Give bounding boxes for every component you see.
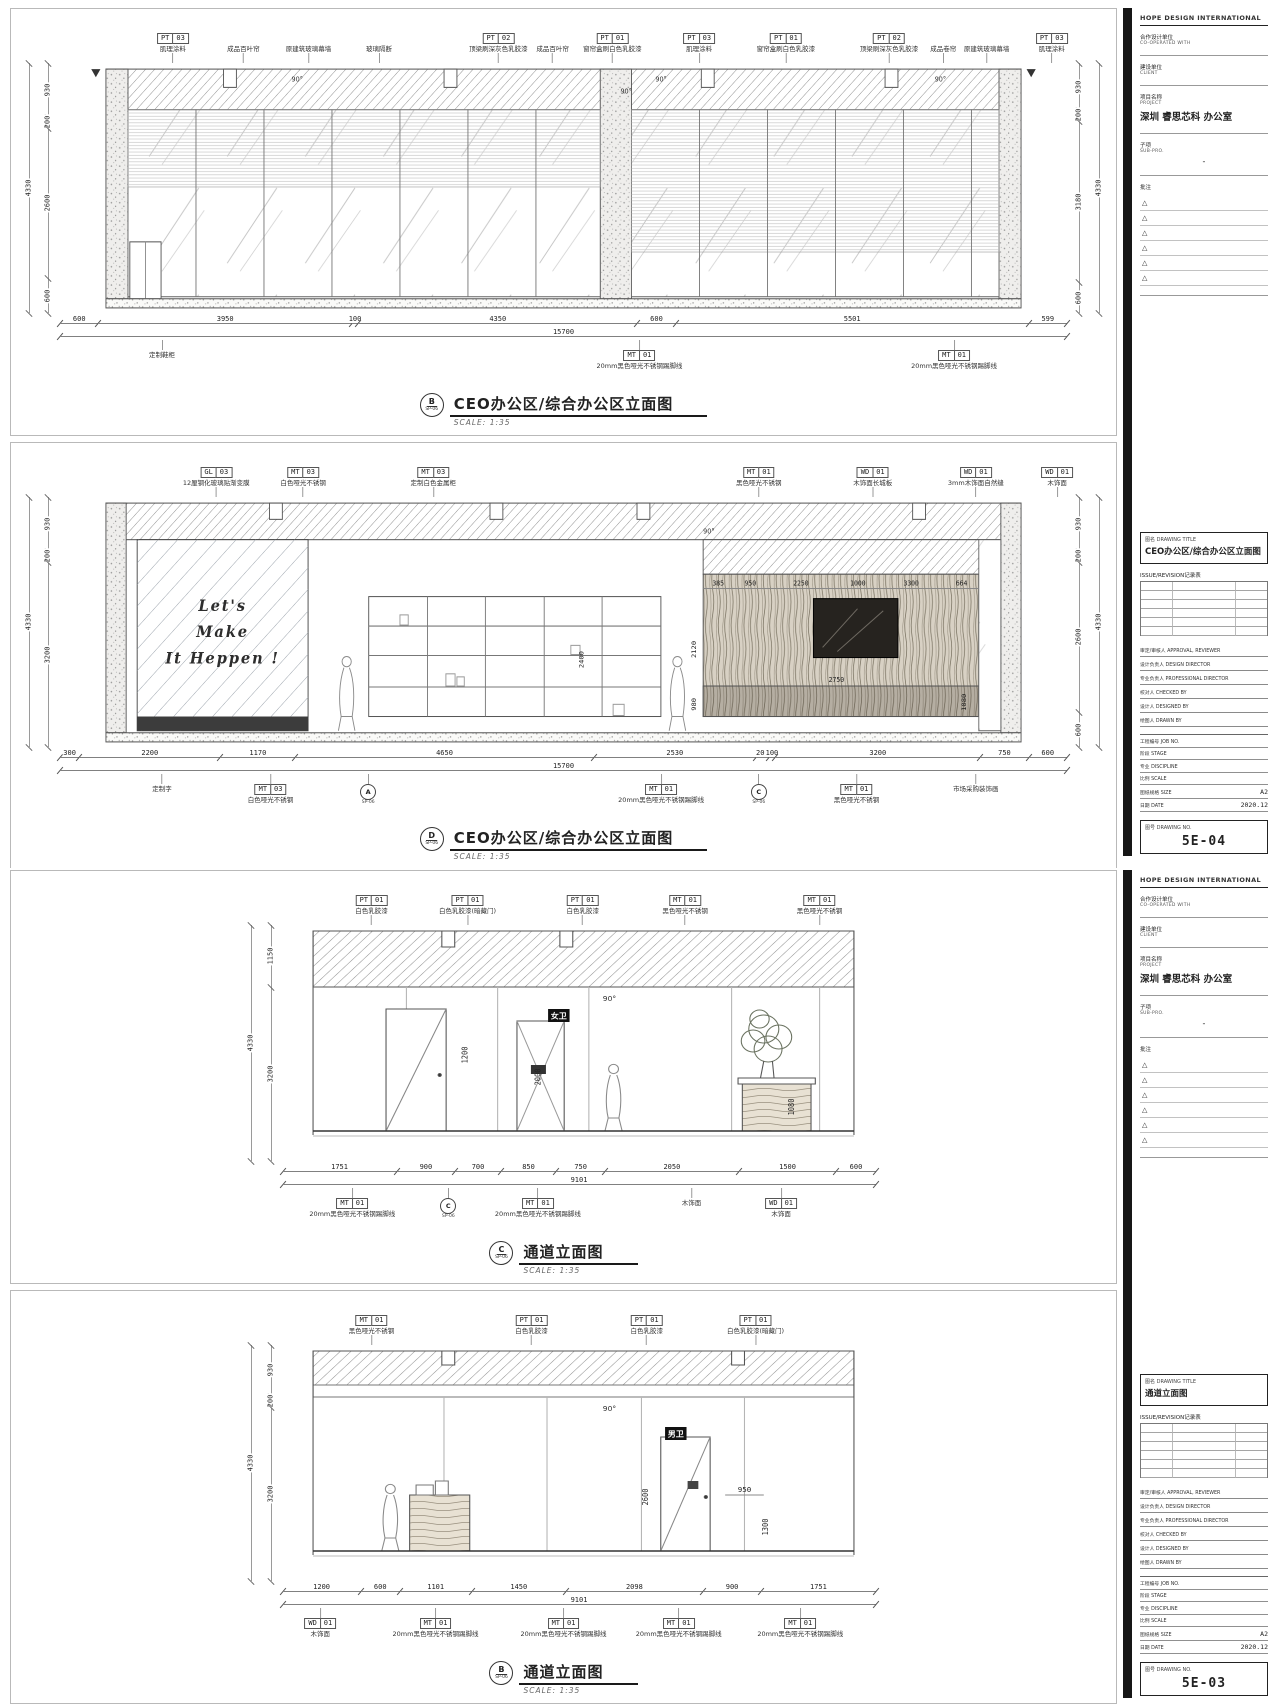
bottom-callout-row: 定制字 MT03 白色哑光不锈钢 A SP-06 bbox=[21, 774, 1106, 822]
material-desc: 20mm黑色哑光不锈钢踢脚线 bbox=[757, 1630, 843, 1638]
material-callout: MT01 20mm黑色哑光不锈钢踢脚线 bbox=[495, 1188, 581, 1218]
dimension-segment: 600 bbox=[1029, 748, 1067, 761]
overall-height-dim: 4330 bbox=[244, 1345, 259, 1581]
dimension-segment: 750 bbox=[556, 1162, 605, 1175]
drawing-scale: SCALE: 1:35 bbox=[519, 1686, 637, 1695]
sheet-5e03: PT01 白色乳胶漆 PT01 白色乳胶漆(暗藏门) PT01 白色乳胶漆 bbox=[8, 868, 1274, 1700]
material-tag: MT01 bbox=[784, 1618, 816, 1629]
leader-line bbox=[216, 487, 217, 497]
dimension-segment: 600 bbox=[1067, 712, 1091, 747]
dimension-segment: 600 bbox=[36, 278, 60, 313]
material-desc: 白色乳胶漆 bbox=[630, 1327, 663, 1335]
elevation-body: 4330 9302003200 bbox=[244, 1345, 884, 1581]
elevation-ceo-office-2: GL03 12厘钢化玻璃贴渐变膜 MT03 白色哑光不锈钢 MT03 定制白色金… bbox=[10, 442, 1117, 870]
material-tag: MT01 bbox=[336, 1198, 368, 1209]
floor-line bbox=[313, 1551, 854, 1556]
dimension-segment: 3200 bbox=[36, 562, 60, 747]
open-shelving bbox=[369, 597, 661, 717]
svg-text:2250: 2250 bbox=[793, 579, 808, 587]
leader-line bbox=[1051, 53, 1052, 63]
leader-line bbox=[758, 487, 759, 497]
material-desc: 顶梁刷深灰色乳胶漆 bbox=[469, 45, 528, 53]
material-callout: MT01 黑色哑光不锈钢 bbox=[349, 1315, 395, 1345]
material-desc: 白色乳胶漆 bbox=[515, 1327, 548, 1335]
material-callout: MT01 20mm黑色哑光不锈钢踢脚线 bbox=[911, 340, 997, 370]
leader-line bbox=[162, 340, 163, 350]
material-tag: PT03 bbox=[157, 33, 189, 44]
material-callout: 定制字 bbox=[152, 774, 172, 793]
bottom-dim-total: 9101 bbox=[283, 1595, 876, 1608]
dimension-segment: 1200 bbox=[283, 1582, 361, 1595]
material-callout: MT01 黑色哑光不锈钢 bbox=[797, 895, 843, 925]
material-callout: MT03 白色哑光不锈钢 bbox=[248, 774, 294, 804]
signature-row: 专业负责人 PROFESSIONAL DIRECTOR bbox=[1140, 1513, 1268, 1527]
dimension-segment: 2600 bbox=[1067, 562, 1091, 712]
dimension-segment: 1101 bbox=[400, 1582, 472, 1595]
meta-row: 专业 DISCIPLINE bbox=[1140, 1602, 1268, 1615]
drawing-title: CSP-06 通道立面图SCALE: 1:35 bbox=[21, 1241, 1106, 1275]
person-figure bbox=[381, 1484, 398, 1551]
drawing-number: 5E-03 bbox=[1145, 1676, 1263, 1691]
subproject-section: 子项SUB-PRO.- bbox=[1140, 138, 1268, 176]
material-tag: MT01 bbox=[522, 1198, 554, 1209]
material-callout: 木饰面 bbox=[682, 1188, 702, 1207]
material-callout: MT03 定制白色金属柜 bbox=[411, 467, 457, 497]
elevation-body: 4330 11503200 bbox=[244, 925, 884, 1161]
coop-section: 合作设计单位CO-OPERATED WITH bbox=[1140, 30, 1268, 56]
material-callout: 玻璃隔断 bbox=[366, 44, 392, 63]
revision-table: ISSUE/REVISION记录表 bbox=[1140, 571, 1268, 636]
material-desc: 20mm黑色哑光不锈钢踢脚线 bbox=[393, 1630, 479, 1638]
material-tag: GL03 bbox=[200, 467, 232, 478]
signature-row: 设计负责人 DESIGN DIRECTOR bbox=[1140, 657, 1268, 671]
dimension-segment: 200 bbox=[36, 551, 60, 563]
dimension-segment: 1751 bbox=[761, 1582, 875, 1595]
material-desc: 白色乳胶漆 bbox=[566, 907, 599, 915]
client-section: 建设单位CLIENT bbox=[1140, 60, 1268, 86]
slogan-glass-wall: Let's Make It Heppen ! bbox=[137, 540, 308, 731]
material-callout: WD01 木饰面 bbox=[765, 1188, 797, 1218]
material-desc: 玻璃隔断 bbox=[366, 45, 392, 53]
meta-row: 专业 DISCIPLINE bbox=[1140, 760, 1268, 773]
door-hidden bbox=[386, 1009, 446, 1131]
meta-table: 工程编号 JOB NO.阶段 STAGE专业 DISCIPLINE比例 SCAL… bbox=[1140, 734, 1268, 812]
meta-row: 阶段 STAGE bbox=[1140, 1590, 1268, 1603]
material-callout: C SP-06 bbox=[440, 1188, 456, 1219]
material-tag: WD01 bbox=[1041, 467, 1073, 478]
leader-line bbox=[162, 774, 163, 784]
material-callout: C SP-06 bbox=[751, 774, 767, 805]
meta-row: 比例 SCALE bbox=[1140, 1615, 1268, 1628]
overall-height-dim: 4330 bbox=[21, 497, 36, 747]
meta-row: 日期 DATE2020.12 bbox=[1140, 1641, 1268, 1655]
leader-line bbox=[661, 774, 662, 784]
dimension-segment: 2600 bbox=[36, 128, 60, 278]
bottom-dim-chain: 175190070085075020501500600 bbox=[283, 1162, 876, 1175]
revision-triangle-icon: △ bbox=[1140, 271, 1268, 286]
material-callout: 原建筑玻璃幕墙 bbox=[964, 44, 1010, 63]
svg-text:1200: 1200 bbox=[460, 1047, 469, 1064]
signature-row: 校对人 CHECKED BY bbox=[1140, 1527, 1268, 1541]
leader-line bbox=[303, 487, 304, 497]
revision-triangle-icon: △ bbox=[1140, 226, 1268, 241]
material-desc: 定制鞋柜 bbox=[149, 351, 175, 359]
svg-text:664: 664 bbox=[956, 579, 968, 587]
signature-row: 绘图人 DRAWN BY bbox=[1140, 713, 1268, 727]
material-tag: MT03 bbox=[287, 467, 319, 478]
bottom-dim-chain: 30022001170465025302001003200750600 bbox=[60, 748, 1067, 761]
elevation-ceo-office-1: PT03 肌理涂料 成品百叶帘 原建筑玻璃幕墙 玻璃隔断 bbox=[10, 8, 1117, 436]
leader-line bbox=[270, 774, 271, 784]
top-callout-row: GL03 12厘钢化玻璃贴渐变膜 MT03 白色哑光不锈钢 MT03 定制白色金… bbox=[21, 443, 1106, 497]
dimension-segment: 3950 bbox=[98, 314, 351, 327]
signature-rows: 审定/审核人 APPROVAL, REVIEWER设计负责人 DESIGN DI… bbox=[1140, 1485, 1268, 1569]
material-callout: MT01 20mm黑色哑光不锈钢踢脚线 bbox=[309, 1188, 395, 1218]
material-desc: 20mm黑色哑光不锈钢踢脚线 bbox=[495, 1210, 581, 1218]
svg-text:90°: 90° bbox=[935, 75, 946, 83]
material-desc: 黑色哑光不锈钢 bbox=[662, 907, 708, 915]
dimension-segment: 1751 bbox=[283, 1162, 397, 1175]
shoe-cabinet bbox=[130, 242, 161, 299]
revision-triangle-icon: △ bbox=[1140, 241, 1268, 256]
client-section: 建设单位CLIENT bbox=[1140, 922, 1268, 948]
drawing-sheet-page: PT03 肌理涂料 成品百叶帘 原建筑玻璃幕墙 玻璃隔断 bbox=[0, 0, 1280, 1700]
elevation-canvas: 90° 90° 90° 90° bbox=[60, 63, 1067, 313]
material-callout: PT01 白色乳胶漆 bbox=[566, 895, 599, 925]
terrazzo-floor bbox=[106, 733, 1021, 742]
material-callout: MT01 20mm黑色哑光不锈钢踢脚线 bbox=[393, 1608, 479, 1638]
leader-line bbox=[552, 53, 553, 63]
dimension-segment: 600 bbox=[637, 314, 675, 327]
material-desc: 20mm黑色哑光不锈钢踢脚线 bbox=[636, 1630, 722, 1638]
material-callout: MT01 20mm黑色哑光不锈钢踢脚线 bbox=[596, 340, 682, 370]
svg-text:2400: 2400 bbox=[578, 651, 586, 668]
top-callout-row: PT01 白色乳胶漆 PT01 白色乳胶漆(暗藏门) PT01 白色乳胶漆 bbox=[244, 871, 884, 925]
material-desc: 20mm黑色哑光不锈钢踢脚线 bbox=[596, 362, 682, 370]
dimension-segment: 5501 bbox=[676, 314, 1029, 327]
leader-line bbox=[172, 53, 173, 63]
firm-name: HOPE DESIGN INTERNATIONAL bbox=[1140, 14, 1268, 26]
drawing-title: BSP-06 CEO办公区/综合办公区立面图SCALE: 1:35 bbox=[21, 393, 1106, 427]
material-tag: MT01 bbox=[663, 1618, 695, 1629]
material-desc: 黑色哑光不锈钢 bbox=[349, 1327, 395, 1335]
dimension-segment: 700 bbox=[455, 1162, 501, 1175]
bottom-dim-total: 15700 bbox=[60, 761, 1067, 774]
svg-text:90°: 90° bbox=[602, 1404, 615, 1413]
material-desc: 白色乳胶漆 bbox=[355, 907, 388, 915]
person-figure bbox=[338, 657, 355, 731]
dimension-segment: 2098 bbox=[566, 1582, 703, 1595]
bottom-dim-total: 15700 bbox=[60, 327, 1067, 340]
drawing-number-box: 图号 DRAWING NO.5E-03 bbox=[1140, 1662, 1268, 1696]
svg-text:90°: 90° bbox=[602, 994, 615, 1003]
drawing-number-box: 图号 DRAWING NO.5E-04 bbox=[1140, 820, 1268, 854]
material-desc: 20mm黑色哑光不锈钢踢脚线 bbox=[309, 1210, 395, 1218]
title-block: HOPE DESIGN INTERNATIONAL 合作设计单位CO-OPERA… bbox=[1132, 6, 1274, 858]
material-callout: GL03 12厘钢化玻璃贴渐变膜 bbox=[183, 467, 250, 497]
elevation-marker-icon: BSP-06 bbox=[489, 1661, 513, 1685]
dimension-segment: 1450 bbox=[472, 1582, 566, 1595]
leader-line bbox=[243, 53, 244, 63]
elevation-corridor-1: PT01 白色乳胶漆 PT01 白色乳胶漆(暗藏门) PT01 白色乳胶漆 bbox=[10, 870, 1117, 1284]
material-callout: 成品百叶帘 bbox=[227, 44, 260, 63]
wood-planter-cabinet bbox=[738, 1078, 815, 1131]
title-block: HOPE DESIGN INTERNATIONAL 合作设计单位CO-OPERA… bbox=[1132, 868, 1274, 1700]
leader-line bbox=[308, 53, 309, 63]
elevation-canvas: 女卫 bbox=[283, 925, 884, 1161]
material-tag: PT03 bbox=[1036, 33, 1068, 44]
material-tag: PT03 bbox=[683, 33, 715, 44]
left-dim-rail: 11503200 bbox=[259, 925, 283, 1161]
material-desc: 木饰面 bbox=[771, 1210, 791, 1218]
meta-row: 工程编号 JOB NO. bbox=[1140, 735, 1268, 748]
material-tag: WD01 bbox=[304, 1618, 336, 1629]
svg-text:2120: 2120 bbox=[690, 641, 698, 658]
revision-table: ISSUE/REVISION记录表 bbox=[1140, 1413, 1268, 1478]
person-figure bbox=[669, 657, 686, 731]
svg-text:90°: 90° bbox=[620, 87, 631, 95]
leader-line bbox=[758, 774, 759, 784]
dimension-segment: 900 bbox=[703, 1582, 762, 1595]
meta-row: 工程编号 JOB NO. bbox=[1140, 1577, 1268, 1590]
meta-row: 比例 SCALE bbox=[1140, 773, 1268, 786]
material-callout: MT01 20mm黑色哑光不锈钢踢脚线 bbox=[521, 1608, 607, 1638]
dimension-segment: 200 bbox=[1067, 110, 1091, 120]
coop-section: 合作设计单位CO-OPERATED WITH bbox=[1140, 892, 1268, 918]
material-callout: PT02 顶梁刷深灰色乳胶漆 bbox=[860, 33, 919, 63]
material-tag: MT01 bbox=[624, 350, 656, 361]
meta-row: 阶段 STAGE bbox=[1140, 748, 1268, 761]
notes-section: 批注 △△△△△△ bbox=[1140, 1042, 1268, 1158]
dimension-segment: 200 bbox=[259, 1396, 283, 1407]
ceiling-beam-hatch bbox=[313, 1351, 854, 1397]
svg-text:90°: 90° bbox=[703, 527, 714, 535]
overall-height-dim: 4330 bbox=[1091, 497, 1106, 747]
dimension-segment: 2200 bbox=[79, 748, 220, 761]
material-tag: PT01 bbox=[596, 33, 628, 44]
overall-height-dim: 4330 bbox=[244, 925, 259, 1161]
svg-text:385: 385 bbox=[712, 579, 724, 587]
drawing-title: BSP-06 通道立面图SCALE: 1:35 bbox=[21, 1661, 1106, 1695]
material-desc: 20mm黑色哑光不锈钢踢脚线 bbox=[521, 1630, 607, 1638]
svg-text:1080: 1080 bbox=[960, 694, 968, 711]
signature-row: 设计人 DESIGNED BY bbox=[1140, 699, 1268, 713]
material-desc: 木饰面 bbox=[682, 1199, 702, 1207]
drawing-title-text: CEO办公区/综合办公区立面图 bbox=[450, 827, 708, 851]
material-desc: 顶梁刷深灰色乳胶漆 bbox=[860, 45, 919, 53]
revision-triangle-icon: △ bbox=[1140, 1118, 1268, 1133]
leader-line bbox=[975, 774, 976, 784]
dimension-segment: 1170 bbox=[220, 748, 295, 761]
sheet2-drawings-column: PT01 白色乳胶漆 PT01 白色乳胶漆(暗藏门) PT01 白色乳胶漆 bbox=[8, 868, 1123, 1700]
material-desc: 3mm木饰面自然缝 bbox=[948, 479, 1004, 487]
leader-line bbox=[800, 1608, 801, 1618]
leader-line bbox=[368, 774, 369, 784]
svg-text:950: 950 bbox=[737, 1485, 751, 1494]
bottom-dim-chain: 600395010043506005501599 bbox=[60, 314, 1067, 327]
material-desc: 定制字 bbox=[152, 785, 172, 793]
project-section: 项目名称PROJECT深圳 睿思芯科 办公室 bbox=[1140, 952, 1268, 996]
dimension-segment: 2530 bbox=[594, 748, 756, 761]
svg-text:1080: 1080 bbox=[786, 1099, 795, 1116]
revision-triangle-icon: △ bbox=[1140, 1103, 1268, 1118]
leader-line bbox=[699, 53, 700, 63]
material-desc: 黑色哑光不锈钢 bbox=[797, 907, 843, 915]
dimension-segment: 900 bbox=[397, 1162, 456, 1175]
material-tag: WD01 bbox=[857, 467, 889, 478]
leader-line bbox=[889, 53, 890, 63]
section-marker-icon: C bbox=[751, 784, 767, 800]
svg-text:950: 950 bbox=[745, 579, 757, 587]
revision-triangle-icon: △ bbox=[1140, 256, 1268, 271]
material-desc: 窗帘盒刷白色乳胶漆 bbox=[583, 45, 642, 53]
material-desc: 肌理涂料 bbox=[686, 45, 712, 53]
material-callout: PT03 肌理涂料 bbox=[683, 33, 715, 63]
material-callout: WD01 3mm木饰面自然缝 bbox=[948, 467, 1004, 497]
signature-row: 设计人 DESIGNED BY bbox=[1140, 1541, 1268, 1555]
material-callout: 原建筑玻璃幕墙 bbox=[286, 44, 332, 63]
material-callout: MT01 20mm黑色哑光不锈钢踢脚线 bbox=[618, 774, 704, 804]
dimension-segment: 930 bbox=[36, 497, 60, 551]
dimension-segment: 1150 bbox=[259, 925, 283, 987]
signature-row: 审定/审核人 APPROVAL, REVIEWER bbox=[1140, 1485, 1268, 1499]
elevation-body: 4330 9302002600600 bbox=[21, 63, 1106, 313]
dimension-segment: 1500 bbox=[739, 1162, 837, 1175]
material-callout: 成品卷帘 bbox=[930, 44, 956, 63]
leader-line bbox=[582, 915, 583, 925]
notes-section: 批注 △△△△△△ bbox=[1140, 180, 1268, 296]
svg-text:2000: 2000 bbox=[533, 1069, 542, 1086]
material-desc: 成品百叶帘 bbox=[227, 45, 260, 53]
drawing-title-text: 通道立面图 bbox=[519, 1241, 637, 1265]
terrazzo-floor bbox=[106, 299, 1021, 308]
drawing-scale: SCALE: 1:35 bbox=[450, 418, 708, 427]
firm-name: HOPE DESIGN INTERNATIONAL bbox=[1140, 876, 1268, 888]
sheet1-drawings-column: PT03 肌理涂料 成品百叶帘 原建筑玻璃幕墙 玻璃隔断 bbox=[8, 6, 1123, 858]
revision-triangle-icon: △ bbox=[1140, 1088, 1268, 1103]
binding-strip bbox=[1123, 870, 1132, 1698]
material-callout: 定制鞋柜 bbox=[149, 340, 175, 359]
wc-sign: 女卫 bbox=[548, 1009, 569, 1022]
material-callout: PT01 白色乳胶漆(暗藏门) bbox=[727, 1315, 784, 1345]
drawing-scale: SCALE: 1:35 bbox=[519, 1266, 637, 1275]
material-desc: 肌理涂料 bbox=[1039, 45, 1065, 53]
signature-row: 审定/审核人 APPROVAL, REVIEWER bbox=[1140, 643, 1268, 657]
material-desc: 白色哑光不锈钢 bbox=[280, 479, 326, 487]
leader-line bbox=[781, 1188, 782, 1198]
elevation-corridor-2: MT01 黑色哑光不锈钢 PT01 白色乳胶漆 PT01 白色乳胶漆 bbox=[10, 1290, 1117, 1704]
material-callout: WD01 木饰面 bbox=[1041, 467, 1073, 497]
dimension-segment: 3180 bbox=[1067, 121, 1091, 283]
bottom-dim-chain: 12006001101145020989001751 bbox=[283, 1582, 876, 1595]
revision-triangle-icon: △ bbox=[1140, 196, 1268, 211]
leader-line bbox=[498, 53, 499, 63]
dimension-segment: 600 bbox=[1067, 282, 1091, 313]
section-marker-icon: C bbox=[440, 1198, 456, 1214]
material-callout: WD01 木饰面 bbox=[304, 1608, 336, 1638]
top-callout-row: MT01 黑色哑光不锈钢 PT01 白色乳胶漆 PT01 白色乳胶漆 bbox=[244, 1291, 884, 1345]
material-tag: PT02 bbox=[873, 33, 905, 44]
material-callout: MT03 白色哑光不锈钢 bbox=[280, 467, 326, 497]
right-dim-rail: 9302003180600 bbox=[1067, 63, 1091, 313]
binding-strip bbox=[1123, 8, 1132, 856]
revision-triangle-icon: △ bbox=[1140, 211, 1268, 226]
svg-text:2750: 2750 bbox=[829, 676, 844, 684]
leader-line bbox=[612, 53, 613, 63]
leader-line bbox=[352, 1188, 353, 1198]
person-figure bbox=[604, 1064, 621, 1131]
svg-text:Make: Make bbox=[195, 622, 249, 642]
material-tag: PT01 bbox=[452, 895, 484, 906]
material-desc: 原建筑玻璃幕墙 bbox=[286, 45, 332, 53]
material-callout: PT01 白色乳胶漆 bbox=[355, 895, 388, 925]
drawing-title-text: CEO办公区/综合办公区立面图 bbox=[450, 393, 708, 417]
section-marker-icon: A bbox=[360, 784, 376, 800]
sheet-5e04: PT03 肌理涂料 成品百叶帘 原建筑玻璃幕墙 玻璃隔断 bbox=[8, 6, 1274, 858]
meta-table: 工程编号 JOB NO.阶段 STAGE专业 DISCIPLINE比例 SCAL… bbox=[1140, 1576, 1268, 1654]
dimension-segment: 930 bbox=[1067, 63, 1091, 110]
material-tag: MT01 bbox=[743, 467, 775, 478]
dimension-segment: 200 bbox=[36, 117, 60, 129]
material-callout: MT01 黑色哑光不锈钢 bbox=[662, 895, 708, 925]
dimension-segment: 600 bbox=[836, 1162, 875, 1175]
project-section: 项目名称PROJECT深圳 睿思芯科 办公室 bbox=[1140, 90, 1268, 134]
material-desc: 木饰面 bbox=[311, 1630, 331, 1638]
leader-line bbox=[537, 1188, 538, 1198]
material-tag: MT01 bbox=[645, 784, 677, 795]
svg-text:1000: 1000 bbox=[850, 579, 865, 587]
wc-sign: 男卫 bbox=[665, 1427, 686, 1440]
leader-line bbox=[320, 1608, 321, 1618]
signature-row: 专业负责人 PROFESSIONAL DIRECTOR bbox=[1140, 671, 1268, 685]
glass-curtain-wall bbox=[128, 110, 999, 297]
dimension-segment: 200 bbox=[1067, 551, 1091, 563]
leader-line bbox=[986, 53, 987, 63]
material-desc: 成品卷帘 bbox=[930, 45, 956, 53]
leader-line bbox=[872, 487, 873, 497]
dimension-segment: 600 bbox=[60, 314, 98, 327]
leader-line bbox=[371, 915, 372, 925]
drawing-title-text: 通道立面图 bbox=[519, 1661, 637, 1685]
leader-line bbox=[646, 1335, 647, 1345]
material-callout: PT01 白色乳胶漆 bbox=[515, 1315, 548, 1345]
material-desc: 白色乳胶漆(暗藏门) bbox=[439, 907, 496, 915]
bottom-callout-row: WD01 木饰面 MT01 20mm黑色哑光不锈钢踢脚线 bbox=[244, 1608, 884, 1656]
dimension-segment: 750 bbox=[980, 748, 1028, 761]
material-desc: 20mm黑色哑光不锈钢踢脚线 bbox=[911, 362, 997, 370]
leader-line bbox=[685, 915, 686, 925]
dimension-segment: 3200 bbox=[259, 987, 283, 1161]
meta-row: 图纸规格 SIZEA2 bbox=[1140, 785, 1268, 799]
material-desc: 黑色哑光不锈钢 bbox=[834, 796, 880, 804]
svg-text:1300: 1300 bbox=[760, 1519, 769, 1536]
material-desc: 木饰面长城板 bbox=[853, 479, 892, 487]
material-callout: MT01 黑色哑光不锈钢 bbox=[736, 467, 782, 497]
material-callout: PT02 顶梁刷深灰色乳胶漆 bbox=[469, 33, 528, 63]
material-tag: PT01 bbox=[740, 1315, 772, 1326]
material-tag: PT02 bbox=[482, 33, 514, 44]
material-callout: WD01 木饰面长城板 bbox=[853, 467, 892, 497]
material-callout: PT01 窗帘盒刷白色乳胶漆 bbox=[757, 33, 816, 63]
material-desc: 木饰面 bbox=[1047, 479, 1067, 487]
project-name: 深圳 睿思芯科 办公室 bbox=[1140, 111, 1268, 124]
elevation-body: 4330 9302003200 bbox=[21, 497, 1106, 747]
leader-line bbox=[467, 915, 468, 925]
material-tag: MT01 bbox=[841, 784, 873, 795]
revision-triangle-icon: △ bbox=[1140, 1058, 1268, 1073]
svg-text:2600: 2600 bbox=[640, 1489, 649, 1506]
leader-line bbox=[563, 1608, 564, 1618]
